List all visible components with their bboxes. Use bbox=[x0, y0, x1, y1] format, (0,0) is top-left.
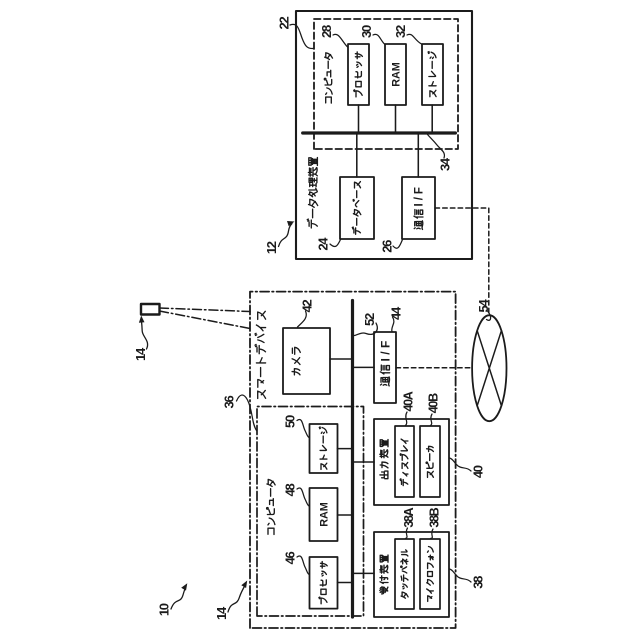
svg-text:36: 36 bbox=[222, 396, 237, 409]
svg-text:24: 24 bbox=[316, 237, 331, 251]
svg-text:14: 14 bbox=[214, 606, 229, 620]
svg-text:44: 44 bbox=[389, 306, 404, 320]
svg-text:32: 32 bbox=[393, 25, 408, 38]
svg-text:50: 50 bbox=[283, 415, 298, 428]
svg-text:12: 12 bbox=[264, 241, 279, 254]
svg-text:RAM: RAM bbox=[390, 62, 402, 87]
svg-text:40B: 40B bbox=[427, 393, 441, 413]
svg-text:30: 30 bbox=[359, 25, 374, 38]
svg-text:40A: 40A bbox=[402, 391, 416, 411]
svg-text:28: 28 bbox=[319, 25, 334, 38]
svg-text:I/F: I/F bbox=[414, 184, 426, 206]
svg-text:38A: 38A bbox=[402, 507, 416, 527]
svg-text:I/F: I/F bbox=[378, 337, 392, 361]
svg-text:52: 52 bbox=[362, 313, 377, 326]
svg-text:46: 46 bbox=[283, 552, 298, 565]
svg-text:RAM: RAM bbox=[318, 502, 330, 527]
svg-text:42: 42 bbox=[300, 300, 315, 313]
svg-text:40: 40 bbox=[471, 465, 486, 478]
svg-text:22: 22 bbox=[277, 17, 292, 30]
svg-text:38: 38 bbox=[471, 576, 486, 589]
svg-text:10: 10 bbox=[157, 603, 172, 616]
svg-text:48: 48 bbox=[283, 484, 298, 497]
svg-text:38B: 38B bbox=[428, 507, 442, 527]
svg-text:34: 34 bbox=[438, 157, 453, 171]
